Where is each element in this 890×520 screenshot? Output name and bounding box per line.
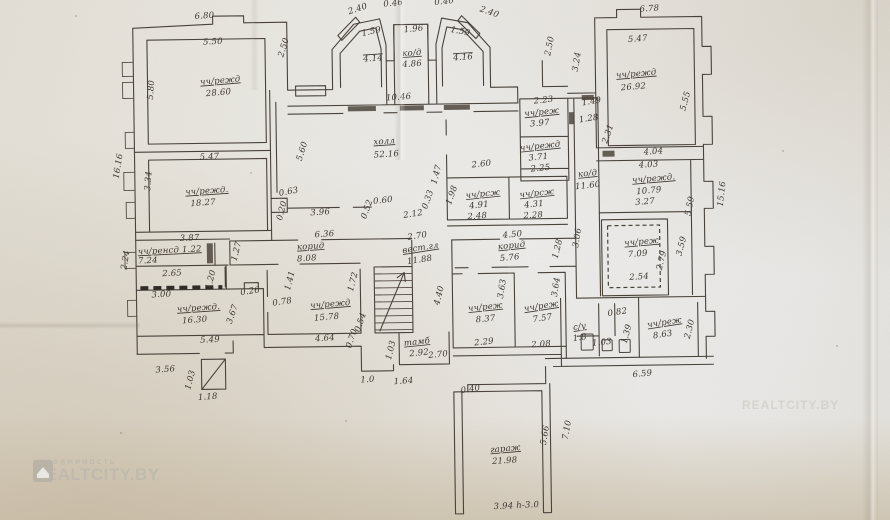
dust-speck — [120, 432, 122, 434]
dust-speck — [836, 345, 838, 347]
paper-grain — [0, 0, 890, 520]
dust-speck — [250, 172, 252, 174]
dust-speck — [345, 420, 347, 422]
dust-speck — [782, 150, 784, 152]
floorplan-drawing: 6.805.505.80чч/режд28.602.502.400.460.40… — [0, 0, 890, 520]
dust-speck — [75, 15, 77, 17]
floorplan-photo: 6.805.505.80чч/режд28.602.502.400.460.40… — [0, 0, 890, 520]
